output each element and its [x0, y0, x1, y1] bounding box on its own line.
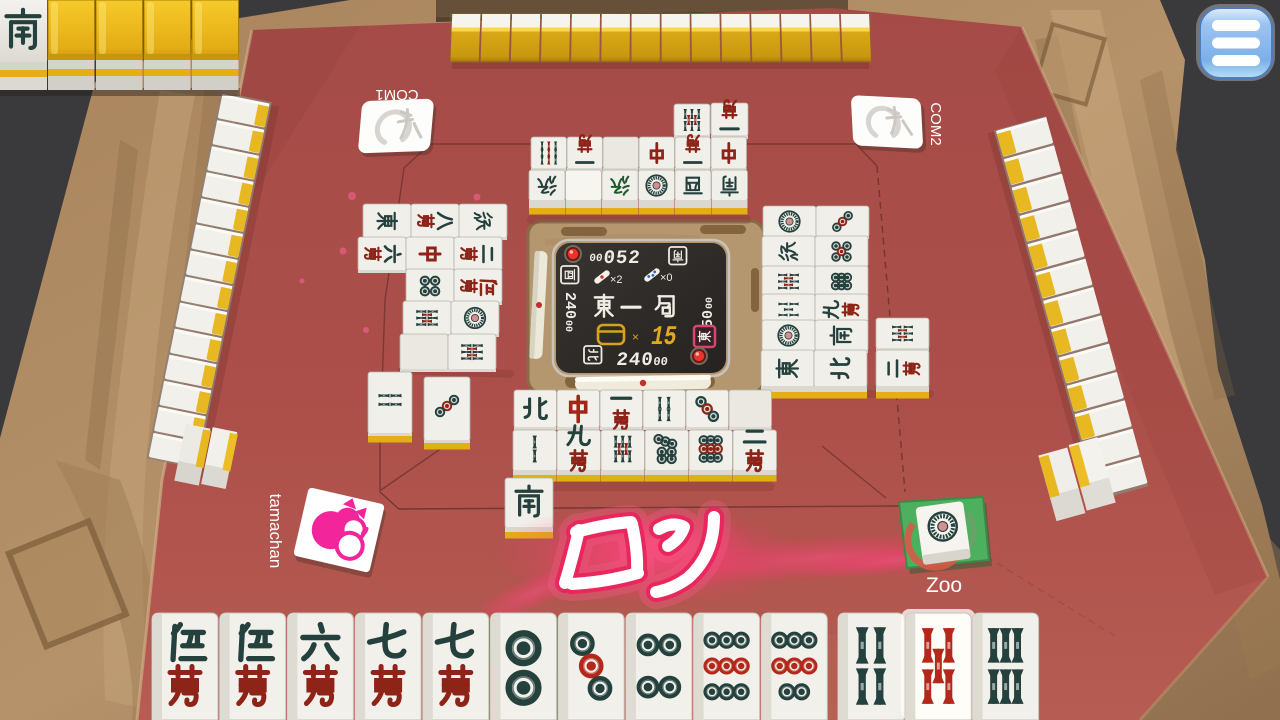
svg-text:00: 00 [705, 297, 716, 309]
svg-text:×2: ×2 [610, 274, 623, 286]
svg-text:240: 240 [615, 349, 655, 371]
svg-text:00: 00 [589, 253, 603, 265]
svg-text:00: 00 [653, 355, 669, 369]
svg-text:052: 052 [602, 247, 642, 269]
svg-text:Zoo: Zoo [926, 574, 962, 597]
svg-text:×0: ×0 [660, 272, 673, 284]
svg-text:×: × [632, 330, 639, 344]
svg-text:240: 240 [561, 292, 578, 319]
svg-text:COM1: COM1 [375, 86, 418, 103]
svg-text:00: 00 [562, 320, 573, 332]
svg-text:COM2: COM2 [927, 102, 944, 145]
svg-text:tamachan: tamachan [266, 494, 285, 569]
